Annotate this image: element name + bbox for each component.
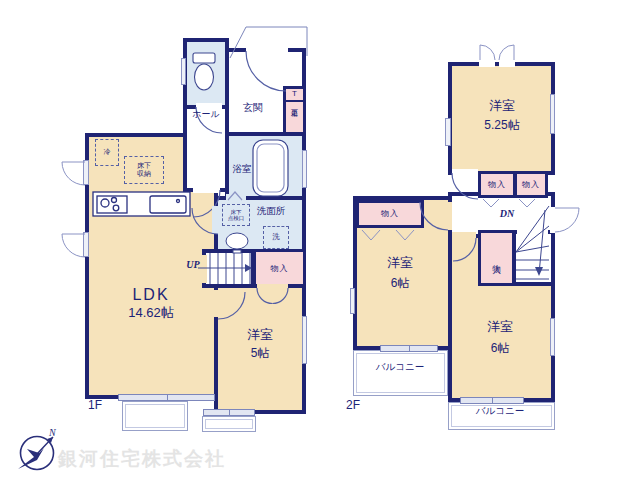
window-bedroom-2f-left-west bbox=[350, 288, 355, 314]
closet-2f-b-label: 物入 bbox=[522, 181, 540, 189]
hall-label: ホール bbox=[184, 110, 228, 120]
underfloor-storage-l2: 収納 bbox=[137, 170, 151, 178]
ldk-area: 14.62帖 bbox=[101, 306, 201, 320]
floor2-label: 2F bbox=[346, 399, 372, 412]
closet-2f-a: 物入 bbox=[478, 171, 516, 198]
stairs-up-box bbox=[202, 249, 255, 288]
inspection-hatch-l2: 点検口 bbox=[228, 215, 245, 221]
window-ldk-south bbox=[118, 394, 215, 401]
bathroom-label: 浴室 bbox=[226, 164, 258, 174]
compass-icon: N bbox=[18, 427, 57, 470]
window-bedroom-2f-top-right bbox=[550, 94, 555, 134]
stairs-up-label: UP bbox=[182, 259, 204, 270]
closet-2f-left: 物入 bbox=[356, 200, 424, 228]
window-toilet bbox=[181, 58, 186, 85]
window-bath-right bbox=[302, 150, 307, 188]
balcony-left-label: バルコニー bbox=[368, 362, 432, 372]
washroom-label: 洗面所 bbox=[250, 206, 292, 216]
ldk-name: LDK bbox=[101, 286, 201, 304]
closet-2f-a-label: 物入 bbox=[488, 181, 506, 189]
terrace-bedroom-1f bbox=[202, 416, 256, 432]
room-toilet bbox=[183, 38, 229, 109]
stair-hall-opening bbox=[517, 229, 548, 240]
window-ldk-left-2 bbox=[83, 232, 89, 257]
shoe-cabinet-mark: T bbox=[292, 90, 297, 99]
window-bedroom-2f-top-left bbox=[445, 118, 451, 146]
closet-2f-center: 物入 bbox=[478, 230, 516, 286]
fridge-label: 冷 bbox=[104, 148, 111, 156]
closet-2f-b: 物入 bbox=[514, 171, 548, 198]
window-arcs-1f bbox=[62, 162, 85, 257]
bedroom-2f-left-area: 6帖 bbox=[368, 277, 432, 290]
closet-1f-label: 物入 bbox=[271, 265, 289, 273]
window-bedroom-1f-south bbox=[203, 409, 255, 416]
window-bedroom-2f-left-south bbox=[380, 345, 438, 352]
terrace-ldk bbox=[122, 401, 188, 431]
underfloor-storage: 床下 収納 bbox=[124, 156, 164, 184]
washer-space: 洗 bbox=[263, 226, 289, 249]
balcony-right-label: バルコニー bbox=[466, 406, 534, 416]
bedroom-1f-name: 洋室 bbox=[214, 328, 306, 342]
bedroom-1f-area: 5帖 bbox=[214, 347, 306, 360]
bedroom-2f-right-area: 6帖 bbox=[468, 342, 532, 355]
inspection-hatch: 床下 点検口 bbox=[222, 204, 250, 226]
underfloor-storage-l1: 床下 bbox=[137, 162, 151, 170]
stairs-down-label: DN bbox=[494, 208, 520, 219]
bedroom-2f-top-area: 5.25帖 bbox=[464, 119, 540, 132]
fridge-space: 冷 bbox=[95, 139, 119, 166]
genkan-label: 玄関 bbox=[230, 102, 276, 113]
balcony-left bbox=[353, 350, 448, 396]
closet-2f-center-label: 物入 bbox=[493, 257, 502, 259]
bedroom-2f-left-name: 洋室 bbox=[368, 256, 432, 270]
bedroom-2f-right-name: 洋室 bbox=[468, 320, 532, 334]
window-ldk-left-1 bbox=[83, 160, 89, 185]
closet-1f: 物入 bbox=[253, 249, 306, 288]
compass-north-label: N bbox=[48, 427, 57, 438]
closet-2f-left-label: 物入 bbox=[381, 210, 399, 218]
washer-label: 洗 bbox=[272, 233, 280, 242]
floor1-label: 1F bbox=[88, 399, 114, 412]
window-bedroom-2f-right-south bbox=[460, 397, 524, 404]
company-watermark: 銀河住宅株式会社 bbox=[58, 446, 226, 472]
window-bedroom-2f-right-east bbox=[550, 318, 555, 356]
floorplan-canvas: T 下足箱 物入 冷 床下 収納 床下 点検口 洗 物入 物入 物入 bbox=[0, 0, 640, 480]
bedroom-2f-top-name: 洋室 bbox=[470, 99, 534, 113]
divider bbox=[286, 100, 303, 102]
